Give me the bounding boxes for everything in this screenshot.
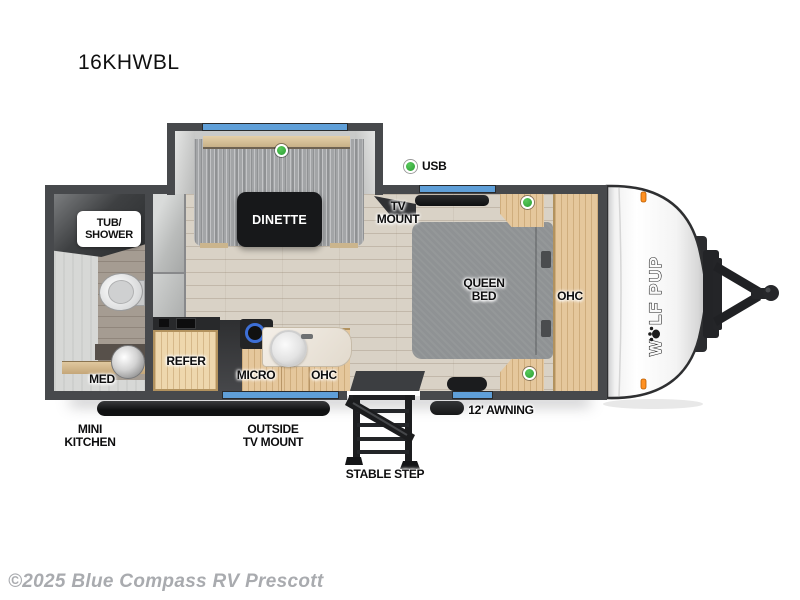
- window-strip: [203, 124, 347, 130]
- bed-bracket: [541, 251, 551, 268]
- floorplan-page: 16KHWBL DINETTE TUB/ SHOWER: [0, 0, 800, 600]
- tv-mount-label: TVMOUNT: [367, 200, 429, 225]
- mattress-seam: [535, 226, 537, 355]
- speaker: [447, 377, 487, 391]
- bed-ohc-label: OHC: [545, 290, 595, 303]
- tub-shower-label2: SHOWER: [85, 229, 133, 241]
- usb-legend-label: USB: [422, 160, 466, 173]
- wall-bottom-right: [420, 391, 607, 400]
- front-cap-and-hitch: W LF PUP: [593, 178, 793, 410]
- stable-step-label: STABLE STEP: [325, 468, 445, 481]
- rear-bumper: [97, 401, 330, 416]
- usb-indicator-icon: [521, 196, 534, 209]
- dinette-bench-trim-right: [330, 243, 358, 248]
- refer-label: REFER: [151, 355, 221, 368]
- galley-cabinet: [153, 274, 186, 317]
- wardrobe: [153, 194, 186, 274]
- usb-indicator-icon: [275, 144, 288, 157]
- slideout-side-left: [175, 131, 195, 194]
- wall-right: [598, 185, 607, 400]
- watermark: ©2025 Blue Compass RV Prescott: [8, 572, 324, 592]
- window-strip: [223, 392, 338, 398]
- refer-countertop: [153, 317, 220, 330]
- counter-item: [159, 319, 169, 327]
- slideout-wall-left: [167, 123, 175, 195]
- hitch-coupler: [763, 285, 779, 301]
- stable-step: [345, 395, 425, 473]
- queen-bed-label: QUEENBED: [444, 277, 524, 302]
- slideout-wall-right: [375, 123, 383, 195]
- dinette-label: DINETTE: [252, 213, 307, 227]
- window-strip: [453, 392, 492, 398]
- med-label: MED: [72, 373, 132, 386]
- toilet-seat: [107, 279, 135, 306]
- outside-tv-mount-label: OUTSIDETV MOUNT: [203, 423, 343, 448]
- usb-indicator-icon: [404, 160, 417, 173]
- window-strip: [420, 186, 495, 192]
- dinette-table: DINETTE: [237, 192, 322, 247]
- mini-kitchen-label: MINIKITCHEN: [40, 423, 140, 448]
- counter-item: [176, 318, 196, 329]
- marker-light-icon: [641, 192, 646, 202]
- usb-indicator-icon: [523, 367, 536, 380]
- tub-shower-label-box: TUB/ SHOWER: [77, 211, 141, 247]
- micro-label: MICRO: [226, 369, 286, 382]
- wall-left: [45, 185, 54, 400]
- dinette-bench-trim-left: [200, 243, 228, 248]
- awning-label: 12' AWNING: [446, 404, 556, 417]
- kitchen-ohc-label: OHC: [294, 369, 354, 382]
- logo-text: LF PUP: [646, 256, 665, 325]
- bed-bracket: [541, 320, 551, 337]
- logo-text: W: [646, 338, 665, 356]
- marker-light-icon: [641, 379, 646, 389]
- page-title: 16KHWBL: [78, 52, 180, 74]
- tub-shower-label: TUB/: [97, 217, 121, 229]
- entry-door-mat: [350, 371, 425, 391]
- faucet: [301, 334, 313, 339]
- wolf-pup-logo: W LF PUP: [646, 256, 665, 356]
